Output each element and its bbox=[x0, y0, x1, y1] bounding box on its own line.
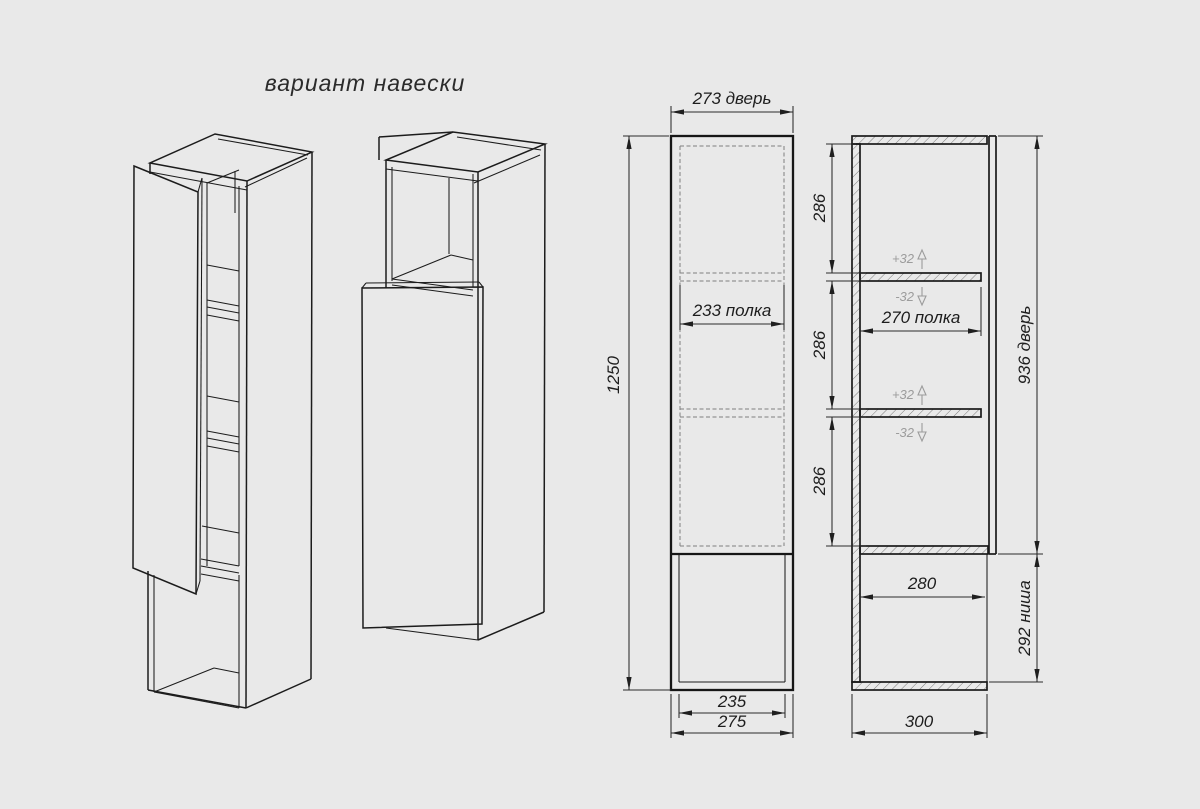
fixed-panel bbox=[860, 546, 988, 554]
niche-depth-label: 280 bbox=[907, 574, 937, 593]
niche-height-label: 292 ниша bbox=[1015, 580, 1034, 656]
shelf1-adjust-down-label: -32 bbox=[895, 289, 915, 304]
dim-shelf-width: 233 полка bbox=[680, 285, 784, 330]
iso-view-door-open bbox=[133, 134, 312, 708]
section-spacing-1-label: 286 bbox=[810, 193, 829, 223]
section-door bbox=[989, 136, 996, 554]
front-hidden-edges bbox=[680, 146, 784, 546]
dim-door-width: 273 дверь bbox=[671, 89, 793, 133]
front-outline bbox=[671, 136, 793, 690]
iso-view-door-closed bbox=[362, 132, 545, 640]
shelf2-adjust-up-label: +32 bbox=[892, 387, 915, 402]
bottom-panel bbox=[852, 682, 987, 690]
outer-width-label: 275 bbox=[717, 712, 747, 731]
top-panel bbox=[852, 136, 987, 144]
open-door-panel bbox=[133, 166, 198, 594]
front-niche bbox=[679, 554, 785, 682]
shelf-2-panel bbox=[860, 409, 981, 417]
iso-shelf-1 bbox=[207, 265, 239, 321]
dim-door-height: 936 дверь bbox=[998, 136, 1043, 554]
door-width-label: 273 дверь bbox=[692, 89, 772, 108]
dim-overall-height: 1250 bbox=[604, 136, 671, 690]
drawing-title: вариант навески bbox=[265, 70, 466, 96]
door-height-label: 936 дверь bbox=[1015, 306, 1034, 385]
outer-depth-label: 300 bbox=[905, 712, 934, 731]
section-spacing-2-label: 286 bbox=[810, 330, 829, 360]
dim-shelf-depth: 270 полка bbox=[860, 287, 981, 336]
back-wall-panel bbox=[852, 144, 860, 682]
furniture-drawing: вариант навески bbox=[0, 0, 1200, 809]
drawing-sheet: вариант навески bbox=[0, 0, 1200, 809]
section-spacing-3-label: 286 bbox=[810, 466, 829, 496]
iso2-top-niche bbox=[392, 167, 473, 296]
shelf-1-panel bbox=[860, 273, 981, 281]
shelf2-adjust-down-label: -32 bbox=[895, 425, 915, 440]
section-view: 286 286 286 +32 -32 +32 -32 270 полка bbox=[810, 136, 1043, 738]
iso2-door-panel bbox=[362, 282, 483, 628]
dim-outer-depth: 300 bbox=[852, 694, 987, 738]
dim-niche-height: 292 ниша bbox=[989, 554, 1043, 682]
overall-height-label: 1250 bbox=[604, 356, 623, 394]
shelf-depth-label: 270 полка bbox=[881, 308, 961, 327]
iso-shelf-2 bbox=[207, 396, 239, 452]
dim-niche-depth: 280 bbox=[860, 574, 985, 597]
shelf1-adjust-up-label: +32 bbox=[892, 251, 915, 266]
niche-inner-width-label: 235 bbox=[717, 692, 747, 711]
front-elevation-view: 273 дверь 1250 233 полка 235 275 bbox=[604, 89, 793, 738]
shelf-width-label: 233 полка bbox=[692, 301, 772, 320]
